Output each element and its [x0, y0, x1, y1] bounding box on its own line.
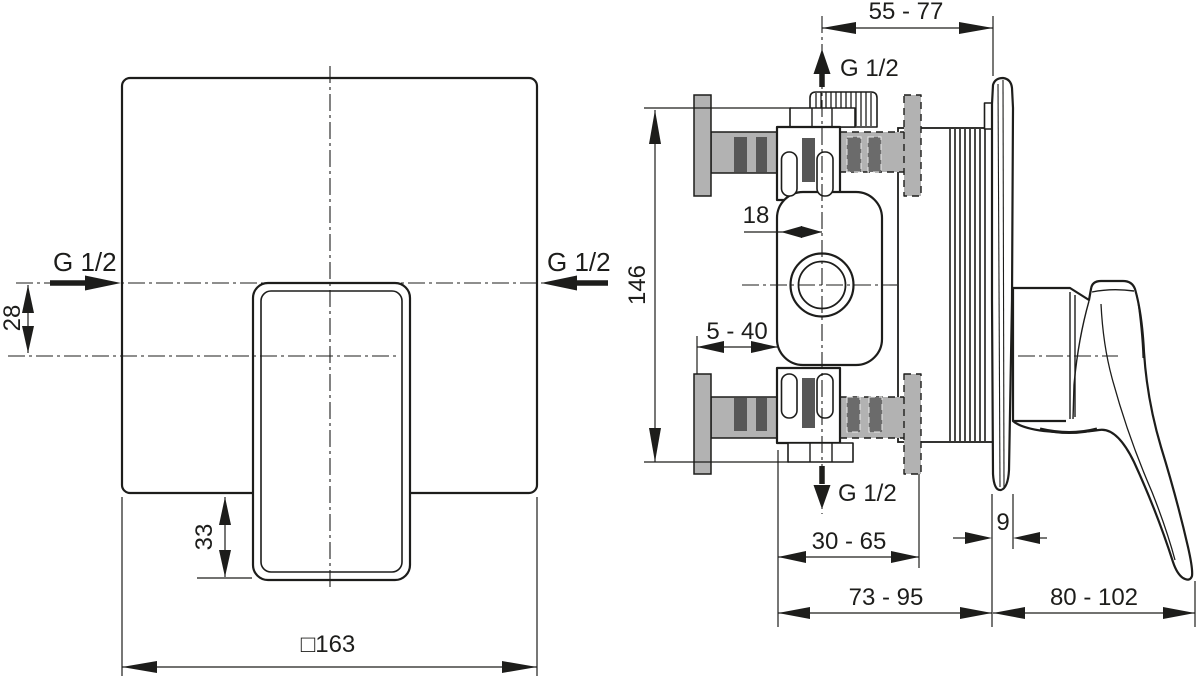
technical-drawing-page: G 1/2 G 1/2 28 33 □1: [0, 0, 1200, 684]
fixing-slot: [782, 374, 798, 418]
dimension-33: 33: [191, 497, 252, 578]
front-view: G 1/2 G 1/2 28 33 □1: [0, 66, 611, 676]
bracket-plate: [694, 374, 711, 474]
dim-9-label: 9: [996, 509, 1009, 536]
bottom-outlet-bar: [802, 378, 815, 428]
down-flow-arrow-head: [814, 485, 831, 509]
dimension-80-102: 80 - 102: [993, 581, 1195, 627]
anchor-bar-hidden: [847, 137, 861, 172]
fixing-slot: [817, 374, 833, 418]
front-inlet-right: G 1/2: [541, 247, 611, 291]
front-thread-right-label: G 1/2: [547, 247, 611, 277]
side-outlet-top: G 1/2: [814, 49, 899, 87]
dim-5-40-label: 5 - 40: [706, 318, 767, 345]
dim-146-label: 146: [624, 265, 651, 305]
top-inlet-bar: [802, 138, 815, 182]
side-thread-bottom-label: G 1/2: [838, 480, 897, 507]
side-thread-top-label: G 1/2: [840, 55, 899, 82]
up-flow-arrow-head: [814, 49, 831, 74]
front-handle-inner: [261, 291, 402, 572]
mixer-dimension-drawing: G 1/2 G 1/2 28 33 □1: [0, 0, 1200, 684]
dim-18-label: 18: [743, 202, 770, 229]
bracket-plate-hidden: [904, 374, 921, 474]
dimension-28: 28: [0, 285, 34, 353]
side-view: G 1/2 G 1/2 55 - 77 146: [624, 0, 1195, 627]
dimension-5-40: 5 - 40: [697, 318, 778, 374]
anchor-bar-hidden: [847, 397, 860, 432]
dimension-9: 9: [953, 494, 1047, 627]
bracket-plate: [694, 95, 711, 196]
bottom-hex-nut: [788, 443, 853, 462]
front-inlet-left: G 1/2: [50, 247, 121, 291]
anchor-bar: [756, 398, 767, 431]
dim-28-label: 28: [0, 305, 26, 332]
anchor-bar: [734, 137, 747, 172]
anchor-bar: [756, 137, 767, 172]
wall-section-top-left: [694, 95, 777, 196]
anchor-bar: [734, 398, 747, 431]
wall-section-bottom-left: [694, 374, 777, 474]
bracket-plate-hidden: [904, 95, 921, 196]
fixing-slot: [782, 152, 798, 196]
dim-73-95-label: 73 - 95: [849, 584, 924, 611]
dim-55-77-label: 55 - 77: [869, 0, 944, 25]
right-flow-arrow-head: [541, 276, 577, 291]
side-outlet-bottom: G 1/2: [814, 466, 897, 509]
anchor-bar-hidden: [869, 397, 882, 432]
dim-163-label: □163: [301, 631, 356, 658]
dim-80-102-label: 80 - 102: [1050, 584, 1138, 611]
left-flow-arrow-head: [85, 276, 121, 291]
anchor-bar-hidden: [868, 137, 881, 172]
dim-30-65-label: 30 - 65: [812, 528, 887, 555]
fixing-slot: [817, 152, 833, 196]
front-thread-left-label: G 1/2: [53, 247, 117, 277]
dim-33-label: 33: [191, 524, 218, 551]
